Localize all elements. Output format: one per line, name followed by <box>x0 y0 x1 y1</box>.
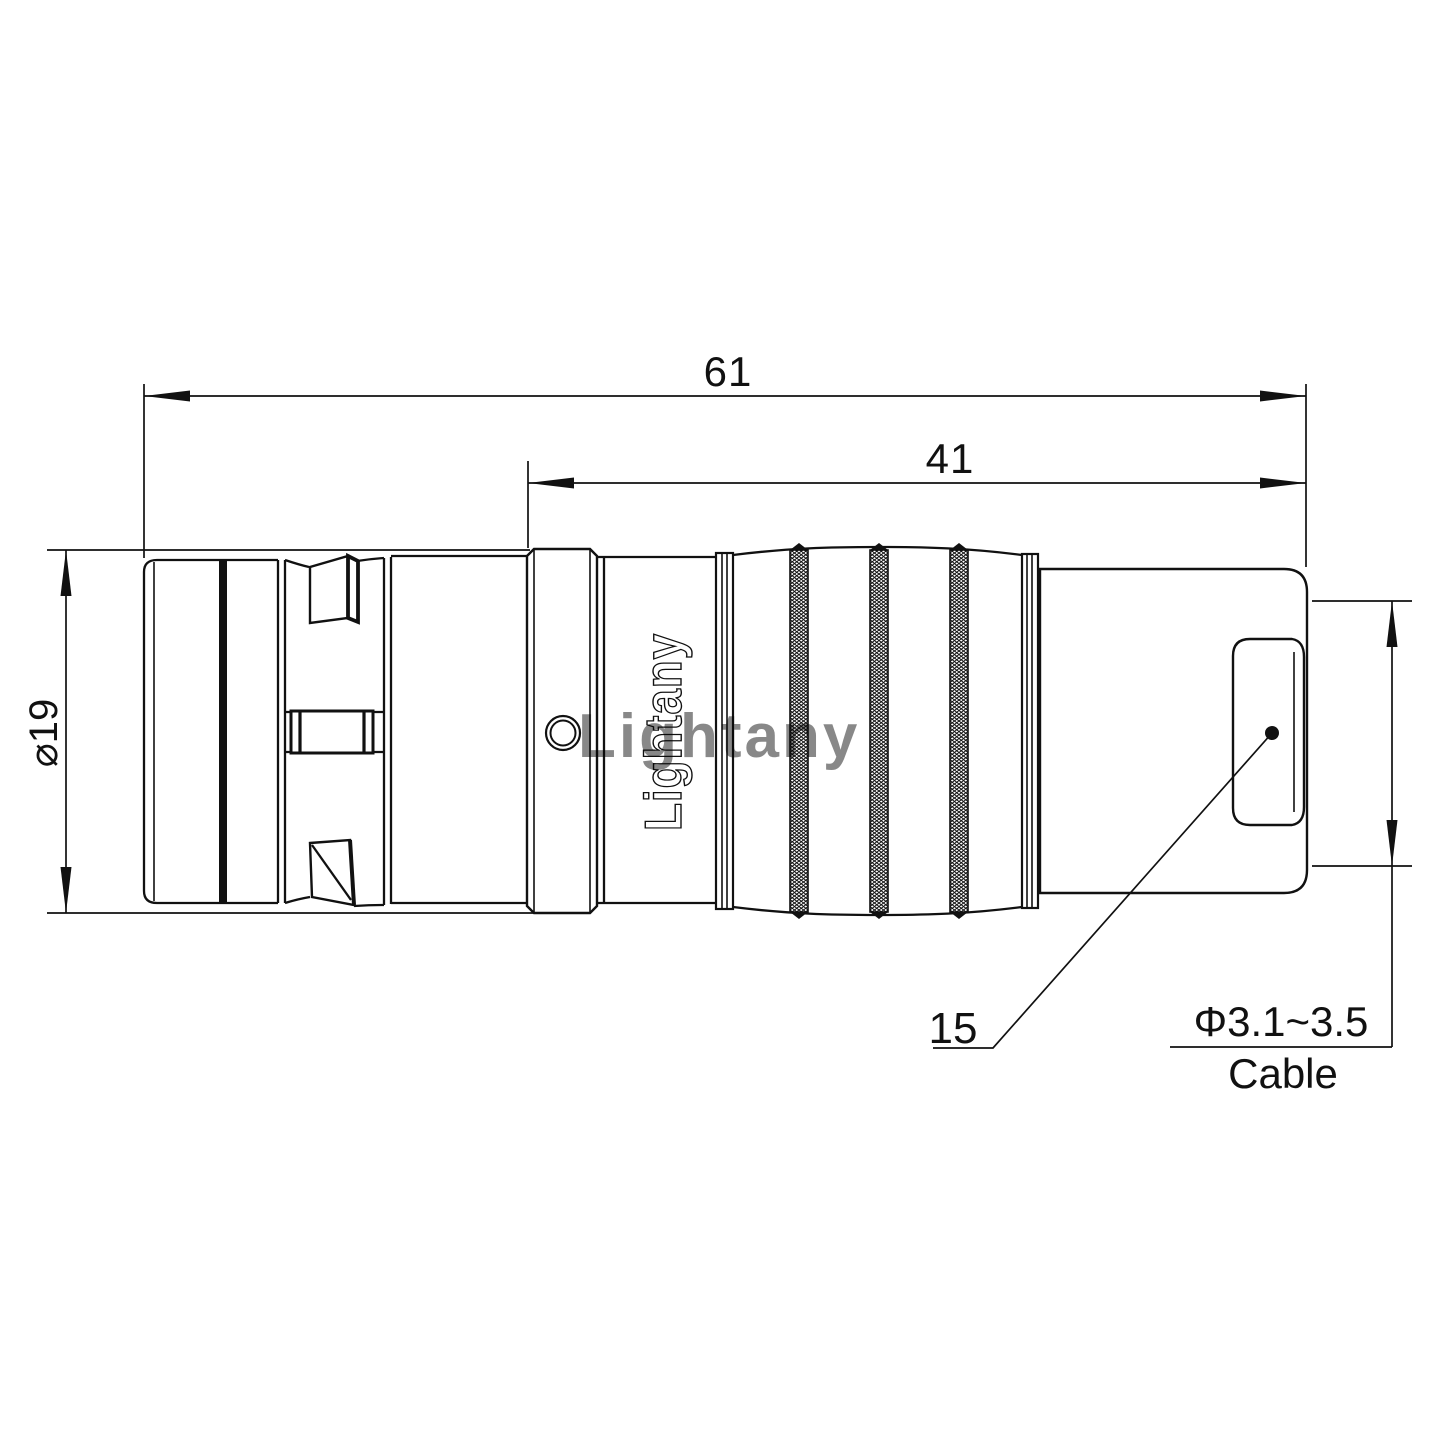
nut-outline <box>144 560 226 903</box>
dim-61-arrow-left <box>144 391 190 402</box>
dim-61-lines <box>144 384 1306 567</box>
latch-sleeve <box>285 556 391 906</box>
nut-section <box>144 560 285 903</box>
cable-dim-arrow-top <box>1387 601 1398 647</box>
knurl-band-3 <box>950 543 968 919</box>
dimension-41: 41 <box>528 435 1306 548</box>
mid-section-edges <box>391 556 527 903</box>
key-slot <box>291 711 373 753</box>
watermark-text: Lightany <box>578 702 860 771</box>
top-key-side <box>348 556 358 622</box>
barrel-right-ring <box>1022 554 1038 908</box>
dimension-61: 61 <box>144 348 1306 567</box>
cable-diameter-value: Φ3.1~3.5 <box>1194 998 1369 1045</box>
dim-61-value: 61 <box>704 348 753 395</box>
dim-15-value: 15 <box>929 1004 978 1053</box>
dim-dia19-arrow-bottom <box>61 867 72 913</box>
dim-dia19-arrow-top <box>61 550 72 596</box>
nut-right-edges <box>226 560 285 903</box>
bottom-latch-key <box>310 840 354 905</box>
sleeve-right-edges <box>384 557 391 905</box>
dim-41-arrow-left <box>528 478 574 489</box>
top-key-face <box>310 556 348 623</box>
cable-dim-arrow-bottom <box>1387 820 1398 866</box>
dim-dia19-value: ⌀19 <box>22 699 66 768</box>
dim-41-arrow-right <box>1260 478 1306 489</box>
dim-61-arrow-right <box>1260 391 1306 402</box>
technical-drawing-page: Lightany 61 <box>0 0 1440 1440</box>
dim-41-lines <box>528 461 1306 548</box>
top-latch-key <box>310 556 358 623</box>
nut-seal-ring <box>219 560 227 903</box>
connector-technical-drawing: Lightany 61 <box>0 0 1440 1440</box>
dim-41-value: 41 <box>926 435 975 482</box>
knurl-band-2 <box>870 543 888 919</box>
cable-label: Cable <box>1228 1050 1338 1097</box>
